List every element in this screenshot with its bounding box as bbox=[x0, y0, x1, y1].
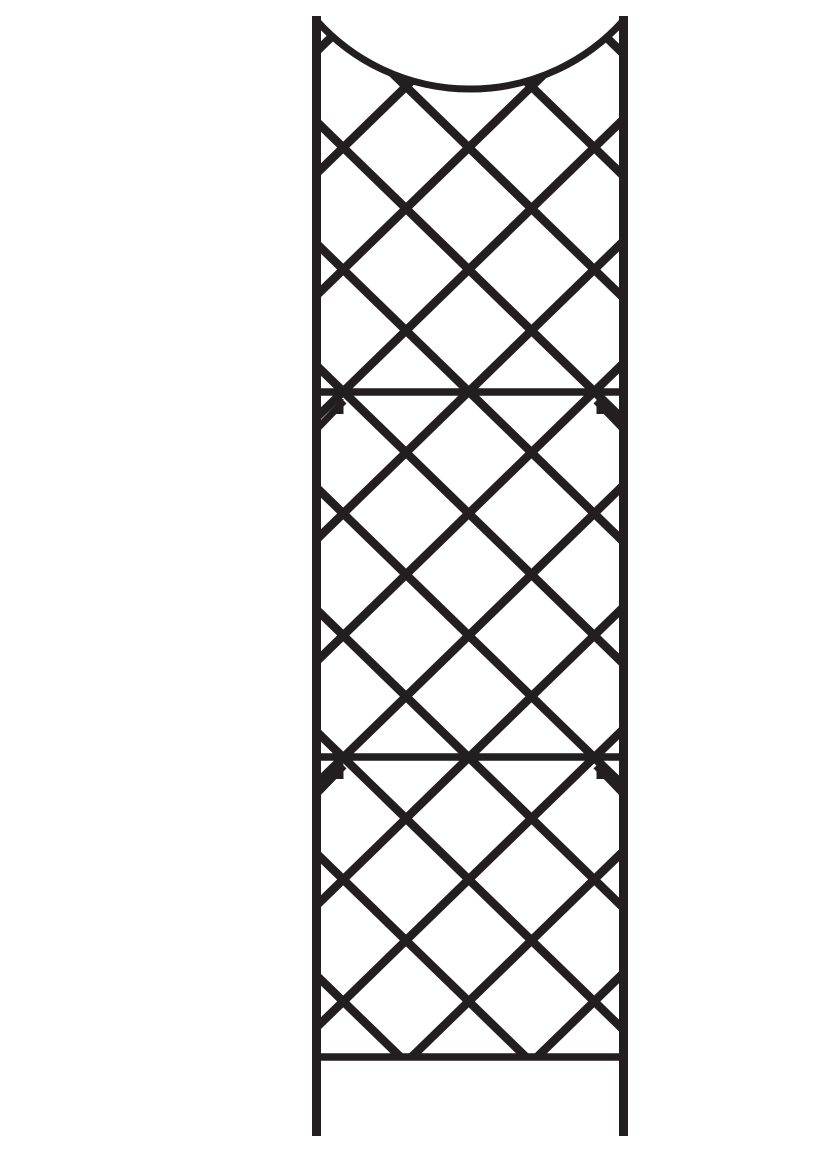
top-arc bbox=[317, 21, 623, 89]
left-rail bbox=[312, 16, 321, 1136]
hook-tab-stub bbox=[597, 399, 604, 414]
right-rail bbox=[619, 16, 628, 1136]
lattice-mesh bbox=[306, 16, 634, 1136]
hook-tab-stub bbox=[337, 399, 344, 414]
hook-tab-stub bbox=[597, 764, 604, 779]
hook-tab-stub bbox=[337, 764, 344, 779]
cross-bar bbox=[312, 1053, 628, 1061]
cross-bar bbox=[312, 753, 628, 761]
product-illustration-canvas bbox=[40, 16, 840, 1136]
cross-bar bbox=[312, 388, 628, 396]
trellis-line-drawing bbox=[40, 16, 840, 1136]
lattice-line bbox=[306, 1087, 634, 1136]
